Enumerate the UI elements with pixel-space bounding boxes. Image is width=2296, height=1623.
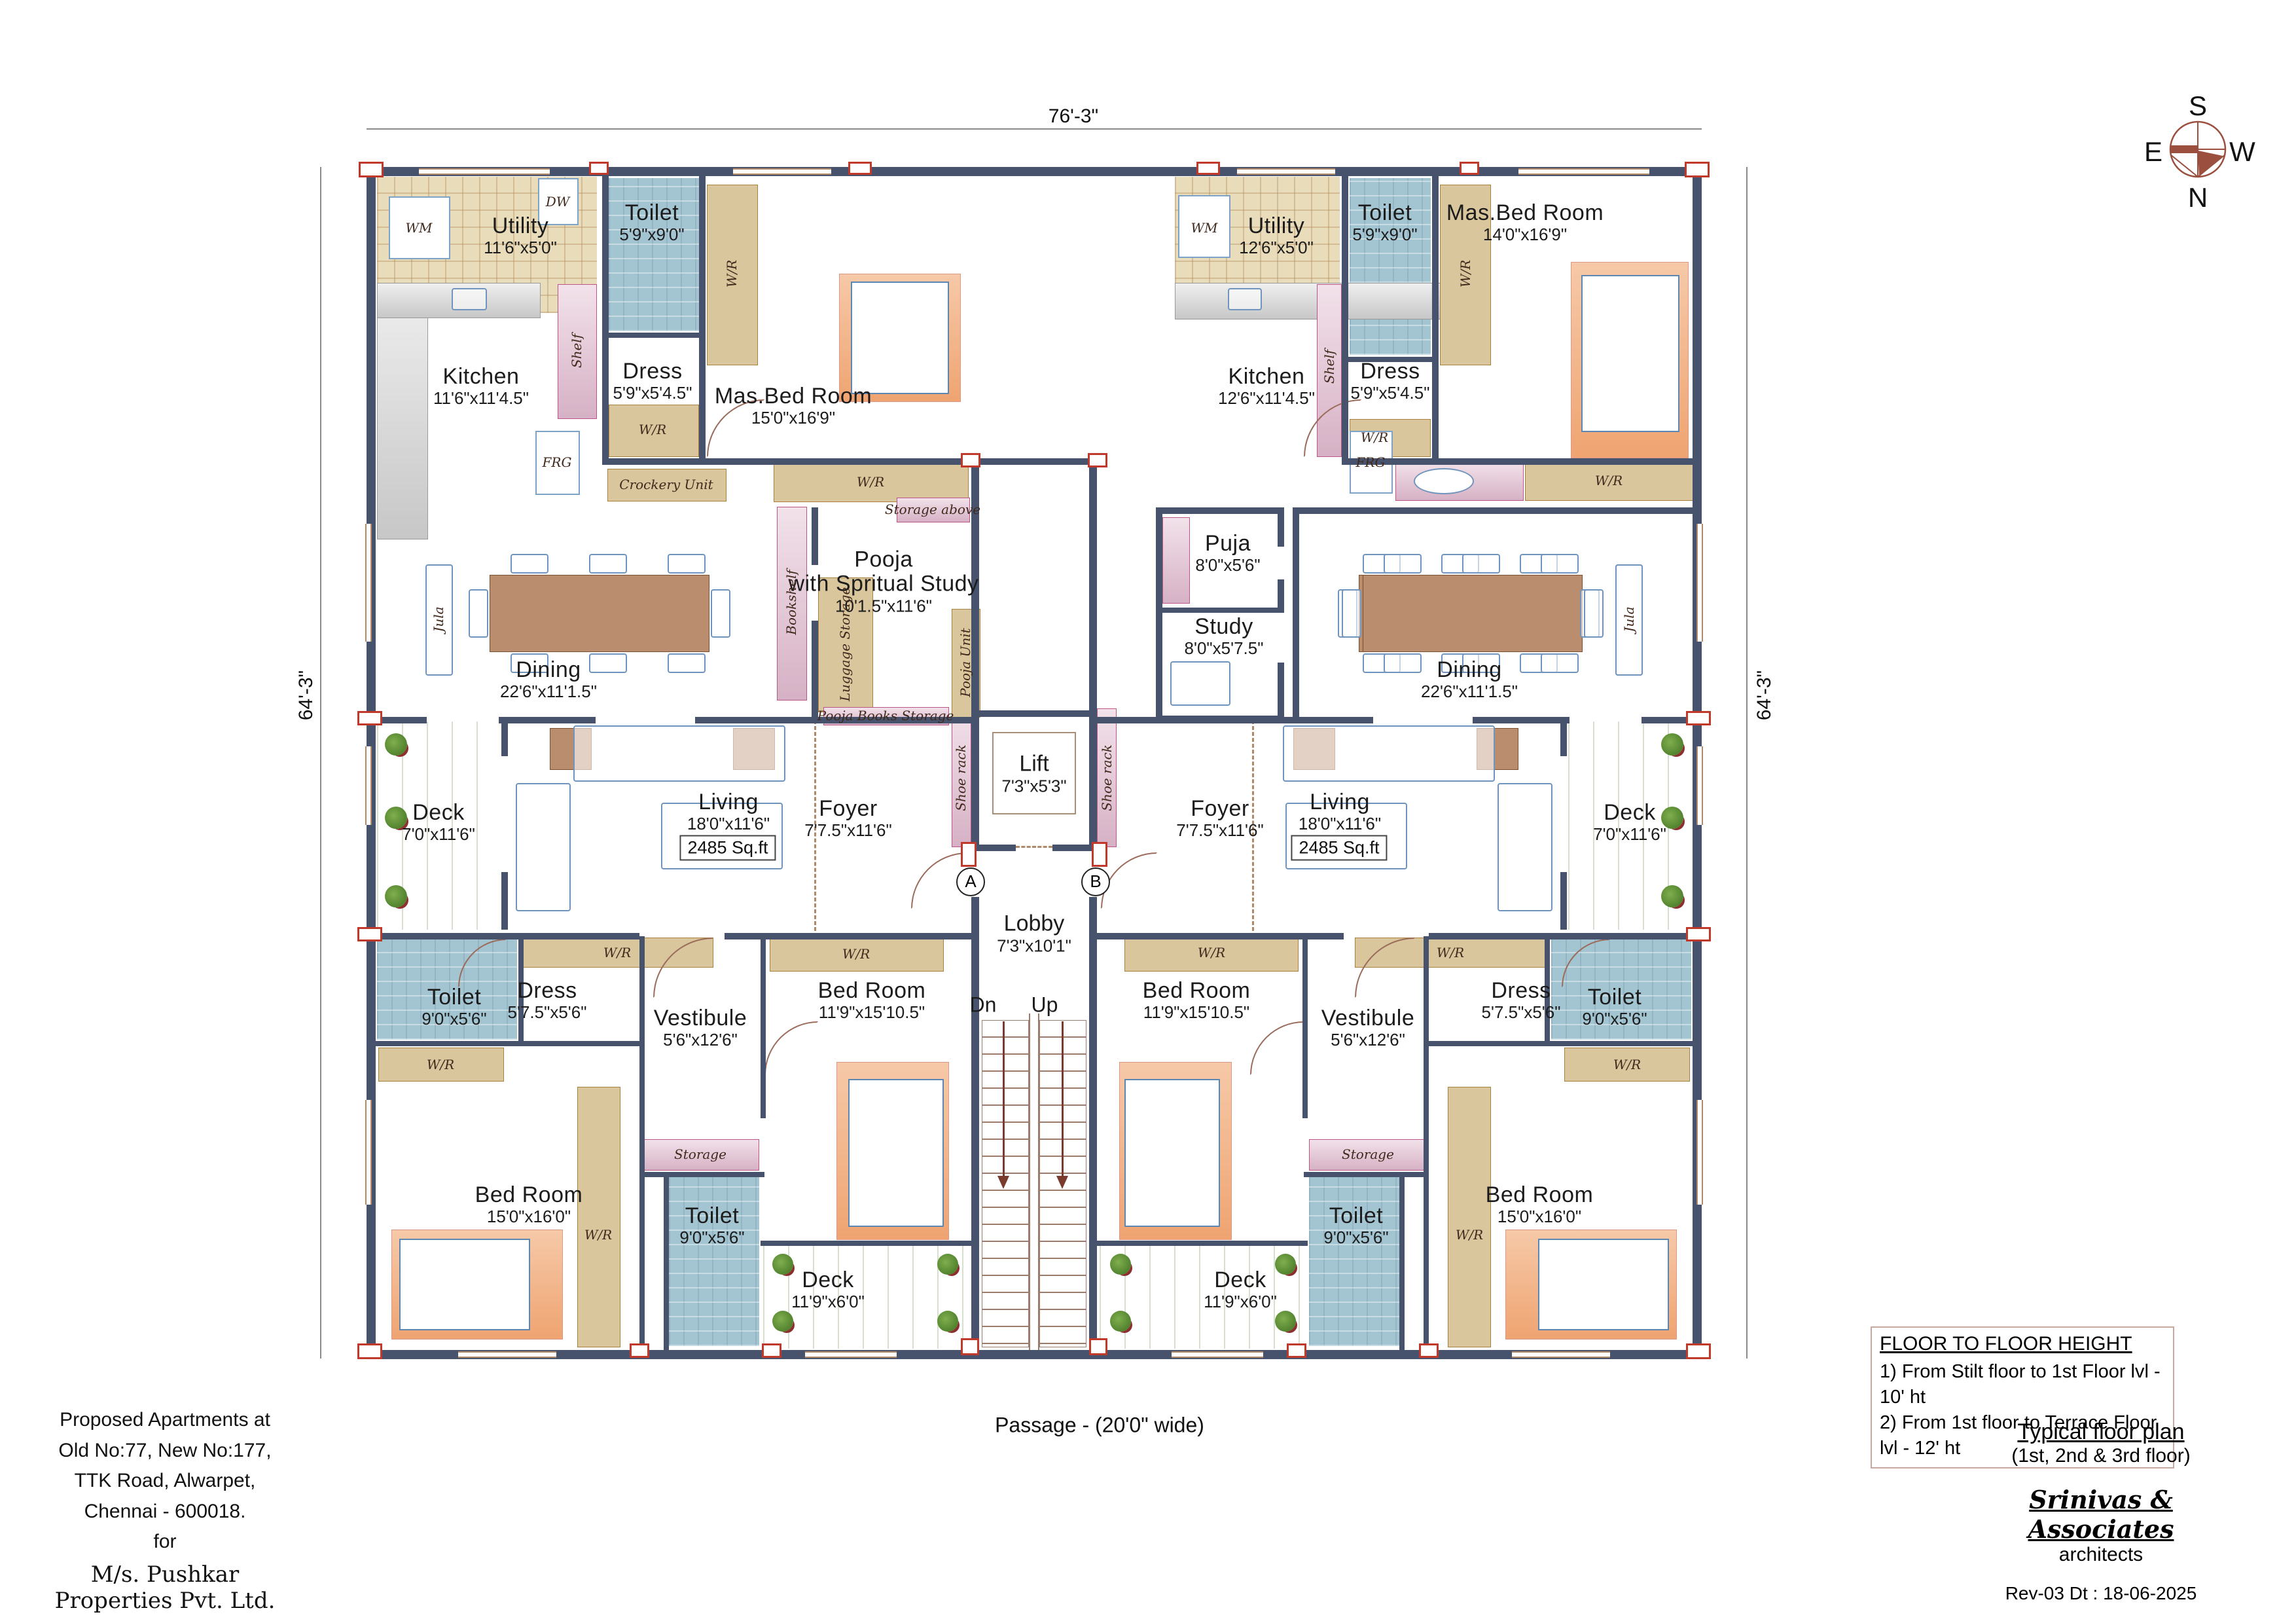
room-label: Dining22'6"x11'1.5" bbox=[1421, 658, 1518, 701]
column-marker bbox=[357, 1343, 382, 1359]
dimension-line bbox=[320, 167, 321, 1359]
wall bbox=[1278, 579, 1284, 612]
room-label: Toilet5'9"x9'0" bbox=[619, 201, 684, 244]
wall bbox=[639, 1172, 764, 1177]
wall bbox=[1560, 872, 1567, 930]
plan-title-block: Typical floor plan (1st, 2nd & 3rd floor… bbox=[1977, 1419, 2225, 1467]
wall bbox=[1425, 1041, 1702, 1046]
room-label: Dining22'6"x11'1.5" bbox=[500, 658, 597, 701]
annotation-label: Jula bbox=[431, 606, 446, 632]
wall bbox=[1089, 935, 1097, 1350]
room-label: Utility11'6"x5'0" bbox=[484, 214, 557, 257]
furniture-icon bbox=[668, 554, 706, 574]
column-marker bbox=[357, 927, 382, 941]
room-name: Deck bbox=[791, 1268, 865, 1292]
room-dimension: 11'9"x15'10.5" bbox=[818, 1003, 926, 1022]
address-line-2: TTK Road, Alwarpet, bbox=[34, 1466, 296, 1497]
furniture-icon bbox=[1342, 589, 1361, 638]
wall bbox=[1342, 167, 1348, 458]
annotation-label: Shoe rack bbox=[953, 744, 969, 811]
plant-icon bbox=[937, 1254, 958, 1275]
plant-icon bbox=[1110, 1254, 1131, 1275]
window bbox=[1518, 168, 1649, 175]
room-dimension: 5'9"x5'4.5" bbox=[1351, 384, 1430, 403]
column-marker bbox=[961, 1338, 979, 1355]
room-dimension: 5'9"x9'0" bbox=[1352, 225, 1417, 244]
column-marker bbox=[589, 162, 609, 175]
annotation-label: Crockery Unit bbox=[619, 477, 713, 492]
wall bbox=[501, 872, 508, 930]
door-arc bbox=[764, 1021, 818, 1075]
dimension-right: 64'-3" bbox=[1753, 670, 1776, 720]
column-marker bbox=[848, 162, 872, 175]
wall bbox=[602, 458, 969, 465]
wall bbox=[602, 167, 609, 458]
room-label: Bed Room15'0"x16'0" bbox=[1486, 1183, 1594, 1226]
furniture-icon bbox=[511, 554, 548, 574]
stair-arrow-head bbox=[997, 1176, 1009, 1189]
lift-label: Lift 7'3"x5'3" bbox=[1001, 752, 1066, 797]
room-label: Vestibule5'6"x12'6" bbox=[654, 1006, 747, 1049]
wall bbox=[639, 936, 645, 1046]
room-dimension: 8'0"x5'6" bbox=[1195, 556, 1260, 575]
annotation-label: Luggage Storage bbox=[837, 587, 853, 702]
plant-icon bbox=[937, 1311, 958, 1332]
wall bbox=[1399, 1177, 1405, 1350]
room-name: Study bbox=[1185, 615, 1264, 639]
window bbox=[1696, 1100, 1703, 1205]
furniture-icon bbox=[1384, 653, 1422, 673]
bed-icon bbox=[399, 1239, 530, 1330]
wall bbox=[1097, 1241, 1308, 1246]
room-dimension: 5'9"x9'0" bbox=[619, 225, 684, 244]
annotation-label: FRG bbox=[543, 454, 572, 470]
title-block: Proposed Apartments at Old No:77, New No… bbox=[34, 1405, 296, 1614]
client-name: M/s. Pushkar Properties Pvt. Ltd. bbox=[34, 1561, 296, 1614]
compass-s: S bbox=[2189, 90, 2207, 122]
wall bbox=[1156, 608, 1284, 613]
column-marker bbox=[1685, 162, 1710, 177]
annotation-label: Bookshelf bbox=[783, 570, 799, 635]
room-dimension: 5'6"x12'6" bbox=[1321, 1030, 1415, 1049]
room-name: Mas.Bed Room bbox=[715, 384, 872, 409]
room-name: Dress bbox=[613, 359, 692, 384]
annotation-label: W/R bbox=[842, 946, 870, 962]
door-arc bbox=[1250, 1021, 1304, 1075]
furniture-icon bbox=[668, 653, 706, 673]
furniture-icon bbox=[573, 725, 785, 782]
room-dimension: 11'6"x5'0" bbox=[484, 238, 557, 257]
column-marker bbox=[961, 842, 977, 867]
room-dimension: 22'6"x11'1.5" bbox=[500, 682, 597, 701]
wall bbox=[1293, 507, 1695, 514]
annotation-label: W/R bbox=[1458, 260, 1473, 287]
project-title: Proposed Apartments at bbox=[34, 1405, 296, 1436]
dimension-line bbox=[1746, 167, 1748, 1359]
address-line-1: Old No:77, New No:177, bbox=[34, 1436, 296, 1467]
annotation-label: W/R bbox=[427, 1057, 454, 1072]
bed-icon bbox=[851, 282, 949, 394]
column-marker bbox=[357, 711, 382, 725]
annotation-label: W/R bbox=[724, 260, 740, 287]
wall bbox=[1304, 1172, 1429, 1177]
plant-icon bbox=[772, 1254, 793, 1275]
wall bbox=[1089, 897, 1097, 935]
annotation-label: WM bbox=[1191, 220, 1217, 236]
compass-e: E bbox=[2144, 136, 2162, 168]
room-label: Bed Room15'0"x16'0" bbox=[475, 1183, 583, 1226]
room-name: Dress bbox=[1351, 359, 1430, 384]
room-name: Toilet bbox=[1582, 985, 1647, 1010]
area-badge: 2485 Sq.ft bbox=[679, 835, 776, 861]
wall bbox=[1278, 507, 1284, 547]
stair-arrow-head bbox=[1056, 1176, 1068, 1189]
column-marker bbox=[1460, 162, 1479, 175]
plan-title: Typical floor plan bbox=[1977, 1419, 2225, 1445]
room-name: Toilet bbox=[1323, 1204, 1388, 1228]
plant-icon bbox=[1275, 1254, 1296, 1275]
room-name: Toilet bbox=[679, 1204, 744, 1228]
annotation-label: W/R bbox=[1595, 473, 1623, 488]
column-marker bbox=[1686, 711, 1711, 725]
wall bbox=[761, 936, 766, 1118]
room-name: Pooja bbox=[788, 547, 978, 572]
room-dimension: 15'0"x16'0" bbox=[1486, 1207, 1594, 1226]
room-name: Kitchen bbox=[1218, 365, 1315, 389]
room-name: Utility bbox=[1239, 214, 1314, 238]
room-name: Vestibule bbox=[1321, 1006, 1415, 1030]
bed-icon bbox=[1581, 275, 1679, 432]
wall bbox=[812, 621, 818, 719]
room-dimension: 18'0"x11'6" bbox=[1299, 814, 1381, 833]
room-dimension: 10'1.5"x11'6" bbox=[788, 596, 978, 615]
annotation-label: Storage above bbox=[885, 501, 980, 517]
room-label: Puja8'0"x5'6" bbox=[1195, 532, 1260, 575]
column-marker bbox=[1287, 1343, 1306, 1358]
column-marker bbox=[1686, 927, 1711, 941]
lobby-label: Lobby 7'3"x10'1" bbox=[997, 911, 1071, 957]
room-dimension: 12'6"x11'4.5" bbox=[1218, 389, 1315, 408]
plant-icon bbox=[1661, 885, 1683, 907]
room-label: Kitchen11'6"x11'4.5" bbox=[433, 365, 529, 408]
door-arc bbox=[1304, 399, 1361, 457]
passage-label: Passage - (20'0" wide) bbox=[995, 1413, 1204, 1438]
room-label: Poojawith Spritual Study10'1.5"x11'6" bbox=[788, 547, 978, 615]
furniture-icon bbox=[1541, 554, 1579, 574]
plant-icon bbox=[1110, 1311, 1131, 1332]
toilet-floor bbox=[1309, 1177, 1399, 1346]
revision-label: Rev-03 Dt : 18-06-2025 bbox=[1970, 1583, 2232, 1604]
annotation-label: W/R bbox=[584, 1227, 612, 1243]
annotation-label: DW bbox=[546, 194, 570, 210]
room-dimension: 9'0"x5'6" bbox=[1582, 1010, 1647, 1029]
wardrobe bbox=[1448, 1087, 1491, 1347]
plant-icon bbox=[1661, 733, 1683, 756]
plant-icon bbox=[385, 733, 407, 756]
room-label: Utility12'6"x5'0" bbox=[1239, 214, 1314, 257]
annotation-label: W/R bbox=[1613, 1057, 1641, 1072]
wall bbox=[979, 845, 1016, 851]
column-marker bbox=[961, 453, 980, 467]
bed-icon bbox=[848, 1079, 944, 1227]
window bbox=[1696, 746, 1703, 825]
furniture-icon bbox=[469, 589, 488, 638]
room-name: Bed Room bbox=[1486, 1183, 1594, 1207]
room-label: Mas.Bed Room15'0"x16'9" bbox=[715, 384, 872, 428]
kitchen-counter bbox=[377, 283, 428, 539]
annotation-label: Storage bbox=[1342, 1146, 1394, 1162]
furniture-icon bbox=[1498, 783, 1552, 911]
room-label: Toilet9'0"x5'6" bbox=[679, 1204, 744, 1247]
column-marker bbox=[762, 1343, 781, 1358]
annotation-label: W/R bbox=[1456, 1227, 1483, 1243]
room-label: Toilet9'0"x5'6" bbox=[1323, 1204, 1388, 1247]
wall bbox=[1052, 845, 1089, 851]
plant-icon bbox=[1275, 1311, 1296, 1332]
wall bbox=[1424, 936, 1429, 1046]
room-name: Dining bbox=[1421, 658, 1518, 682]
furniture-icon bbox=[1170, 661, 1230, 706]
room-dimension: 18'0"x11'6" bbox=[687, 814, 770, 833]
room-name: Toilet bbox=[619, 201, 684, 225]
dimension-line bbox=[367, 128, 1702, 130]
window bbox=[365, 746, 372, 825]
table-icon bbox=[1363, 575, 1583, 652]
window bbox=[1172, 1351, 1263, 1358]
room-dimension: 22'6"x11'1.5" bbox=[1421, 682, 1518, 701]
furniture-icon bbox=[1384, 554, 1422, 574]
room-dimension: 9'0"x5'6" bbox=[1323, 1228, 1388, 1247]
room-name: Bed Room bbox=[475, 1183, 583, 1207]
furniture-icon bbox=[1584, 589, 1604, 638]
room-name: Mas.Bed Room bbox=[1446, 201, 1604, 225]
wall bbox=[501, 723, 508, 756]
dimension-left: 64'-3" bbox=[295, 670, 317, 720]
column-marker bbox=[359, 162, 384, 177]
wall bbox=[499, 717, 596, 723]
wardrobe bbox=[577, 1087, 620, 1347]
annotation-label: Jula bbox=[1621, 606, 1637, 632]
annotation-label: W/R bbox=[857, 474, 884, 490]
wall bbox=[1293, 507, 1299, 718]
basin-icon bbox=[1414, 468, 1474, 494]
furniture-icon bbox=[516, 783, 571, 911]
room-name: Dress bbox=[508, 979, 587, 1003]
room-dimension: 15'0"x16'0" bbox=[475, 1207, 583, 1226]
room-label: Mas.Bed Room14'0"x16'9" bbox=[1446, 201, 1604, 244]
room-dimension: 15'0"x16'9" bbox=[715, 409, 872, 428]
furniture-icon bbox=[1228, 288, 1262, 310]
firm-name: Srinivas & Associates bbox=[1970, 1485, 2232, 1544]
column-marker bbox=[630, 1343, 649, 1358]
wall bbox=[1156, 507, 1284, 514]
room-label: Toilet5'9"x9'0" bbox=[1352, 201, 1417, 244]
column-marker bbox=[1089, 1338, 1107, 1355]
compass-w: W bbox=[2229, 136, 2255, 168]
annotation-label: W/R bbox=[603, 945, 631, 960]
wall bbox=[1560, 723, 1567, 756]
notes-heading: FLOOR TO FLOOR HEIGHT bbox=[1880, 1333, 2165, 1355]
floor-plan-sheet: Utility11'6"x5'0"Toilet5'9"x9'0"Kitchen1… bbox=[0, 0, 2296, 1623]
compass-n: N bbox=[2188, 182, 2208, 213]
annotation-label: Storage bbox=[674, 1146, 726, 1162]
window bbox=[1696, 524, 1703, 642]
room-label: Kitchen12'6"x11'4.5" bbox=[1218, 365, 1315, 408]
room-label: Living18'0"x11'6" bbox=[1299, 790, 1381, 833]
room-label: Dress5'7.5"x5'6" bbox=[508, 979, 587, 1022]
wall bbox=[1424, 1044, 1429, 1350]
annotation-label: Shoe rack bbox=[1099, 744, 1115, 811]
annotation-label: W/R bbox=[1361, 429, 1388, 445]
room-name: Deck bbox=[1593, 801, 1666, 825]
annotation-label: W/R bbox=[639, 422, 666, 437]
room-dimension: 9'0"x5'6" bbox=[422, 1010, 486, 1029]
wall bbox=[664, 1177, 669, 1350]
notes-item-1: 1) From Stilt floor to 1st Floor lvl - 1… bbox=[1880, 1359, 2165, 1410]
wall bbox=[367, 933, 639, 939]
annotation-label: Pooja Books Storage bbox=[817, 708, 954, 723]
room-label: Toilet9'0"x5'6" bbox=[1582, 985, 1647, 1029]
room-name: Vestibule bbox=[654, 1006, 747, 1030]
window bbox=[458, 1351, 556, 1358]
room-dimension: 9'0"x5'6" bbox=[679, 1228, 744, 1247]
annotation-label: Shelf bbox=[569, 334, 584, 368]
room-dimension: 12'6"x5'0" bbox=[1239, 238, 1314, 257]
bed-icon bbox=[1124, 1079, 1220, 1227]
room-dimension: 5'6"x12'6" bbox=[654, 1030, 747, 1049]
stairs-down-label: Dn bbox=[970, 993, 997, 1017]
wall bbox=[639, 1044, 645, 1350]
wall bbox=[1432, 167, 1439, 458]
annotation-label: Pooja Unit bbox=[958, 628, 973, 697]
room-dimension: 8'0"x5'7.5" bbox=[1185, 639, 1264, 658]
room-name: Dining bbox=[500, 658, 597, 682]
furniture-icon bbox=[1283, 725, 1495, 782]
room-dimension: 11'9"x15'10.5" bbox=[1143, 1003, 1251, 1022]
plant-icon bbox=[772, 1311, 793, 1332]
wall bbox=[1342, 458, 1695, 465]
opening-line bbox=[1016, 846, 1052, 848]
stair-arrow bbox=[1062, 1021, 1064, 1178]
window bbox=[419, 168, 550, 175]
room-label: Toilet9'0"x5'6" bbox=[422, 985, 486, 1029]
room-label: Deck11'9"x6'0" bbox=[791, 1268, 865, 1311]
room-label: Bed Room11'9"x15'10.5" bbox=[1143, 979, 1251, 1022]
room-label: Dress5'9"x5'4.5" bbox=[1351, 359, 1430, 403]
firm-role: architects bbox=[1970, 1544, 2232, 1566]
furniture-icon bbox=[589, 554, 627, 574]
room-dimension: 7'7.5"x11'6" bbox=[1176, 821, 1263, 840]
room-dimension: 11'6"x11'4.5" bbox=[433, 389, 529, 408]
window bbox=[365, 524, 372, 642]
room-dimension: 11'9"x6'0" bbox=[1204, 1292, 1277, 1311]
architect-block: Srinivas & Associates architects Rev-03 … bbox=[1970, 1485, 2232, 1604]
room-label: Deck7'0"x11'6" bbox=[1593, 801, 1666, 844]
annotation-label: W/R bbox=[1437, 945, 1464, 960]
window bbox=[733, 168, 831, 175]
room-name: Bed Room bbox=[1143, 979, 1251, 1003]
room-dimension: 5'7.5"x5'6" bbox=[1482, 1003, 1561, 1022]
room-label: Deck7'0"x11'6" bbox=[402, 801, 475, 844]
plan-subtitle: (1st, 2nd & 3rd floor) bbox=[1977, 1445, 2225, 1467]
table-icon bbox=[490, 575, 709, 652]
room-name: Deck bbox=[1204, 1268, 1277, 1292]
furniture-icon bbox=[452, 288, 487, 310]
address-line-3: Chennai - 600018. bbox=[34, 1497, 296, 1527]
toilet-floor bbox=[669, 1177, 759, 1346]
room-dimension: 5'9"x5'4.5" bbox=[613, 384, 692, 403]
wall bbox=[602, 333, 699, 338]
room-name: Living bbox=[1299, 790, 1381, 814]
room-name: Foyer bbox=[804, 797, 891, 821]
wall bbox=[1429, 933, 1702, 939]
room-name: Puja bbox=[1195, 532, 1260, 556]
window bbox=[365, 1100, 372, 1205]
room-label: Deck11'9"x6'0" bbox=[1204, 1268, 1277, 1311]
room-name: Bed Room bbox=[818, 979, 926, 1003]
room-name: Toilet bbox=[422, 985, 486, 1010]
wall bbox=[1473, 717, 1570, 723]
wall bbox=[367, 1041, 643, 1046]
annotation-label: FRG bbox=[1356, 454, 1386, 470]
room-label: Living18'0"x11'6" bbox=[687, 790, 770, 833]
room-dimension: 7'7.5"x11'6" bbox=[804, 821, 891, 840]
stairs-up-label: Up bbox=[1031, 993, 1058, 1017]
room-name: Living bbox=[687, 790, 770, 814]
room-label: Dress5'9"x5'4.5" bbox=[613, 359, 692, 403]
annotation-label: WM bbox=[405, 220, 432, 236]
wall bbox=[761, 1241, 971, 1246]
room-label: Dress5'7.5"x5'6" bbox=[1482, 979, 1561, 1022]
wall bbox=[1156, 507, 1162, 718]
bed-icon bbox=[1538, 1239, 1669, 1330]
window bbox=[805, 1351, 897, 1358]
wall bbox=[1089, 458, 1097, 851]
annotation-label: W/R bbox=[1198, 945, 1225, 960]
wall bbox=[1302, 936, 1308, 1118]
room-name: Toilet bbox=[1352, 201, 1417, 225]
room-name: with Spritual Study bbox=[788, 572, 978, 596]
wall bbox=[979, 710, 1089, 717]
wall bbox=[971, 897, 979, 935]
plant-icon bbox=[385, 885, 407, 907]
room-dimension: 14'0"x16'9" bbox=[1446, 225, 1604, 244]
furniture-icon bbox=[711, 589, 730, 638]
entry-b-marker: B bbox=[1081, 867, 1110, 896]
room-dimension: 11'9"x6'0" bbox=[791, 1292, 865, 1311]
column-marker bbox=[1686, 1343, 1711, 1359]
stair-stringer bbox=[1029, 1013, 1039, 1350]
furniture-icon bbox=[1541, 653, 1579, 673]
compass-rose-icon: S N E W bbox=[2147, 92, 2251, 210]
wall bbox=[1156, 716, 1284, 722]
column-marker bbox=[1419, 1343, 1439, 1358]
wall bbox=[969, 458, 1097, 465]
room-label: Foyer7'7.5"x11'6" bbox=[1176, 797, 1263, 840]
furniture-icon bbox=[1462, 554, 1500, 574]
room-name: Utility bbox=[484, 214, 557, 238]
window bbox=[1512, 1351, 1610, 1358]
area-badge: 2485 Sq.ft bbox=[1291, 835, 1387, 861]
room-label: Foyer7'7.5"x11'6" bbox=[804, 797, 891, 840]
stair-arrow bbox=[1003, 1021, 1005, 1178]
window bbox=[1237, 168, 1335, 175]
for-label: for bbox=[34, 1527, 296, 1558]
wall bbox=[1278, 663, 1284, 717]
room-dimension: 7'0"x11'6" bbox=[402, 825, 475, 844]
column-marker bbox=[1092, 842, 1107, 867]
annotation-label: Shelf bbox=[1321, 350, 1337, 384]
